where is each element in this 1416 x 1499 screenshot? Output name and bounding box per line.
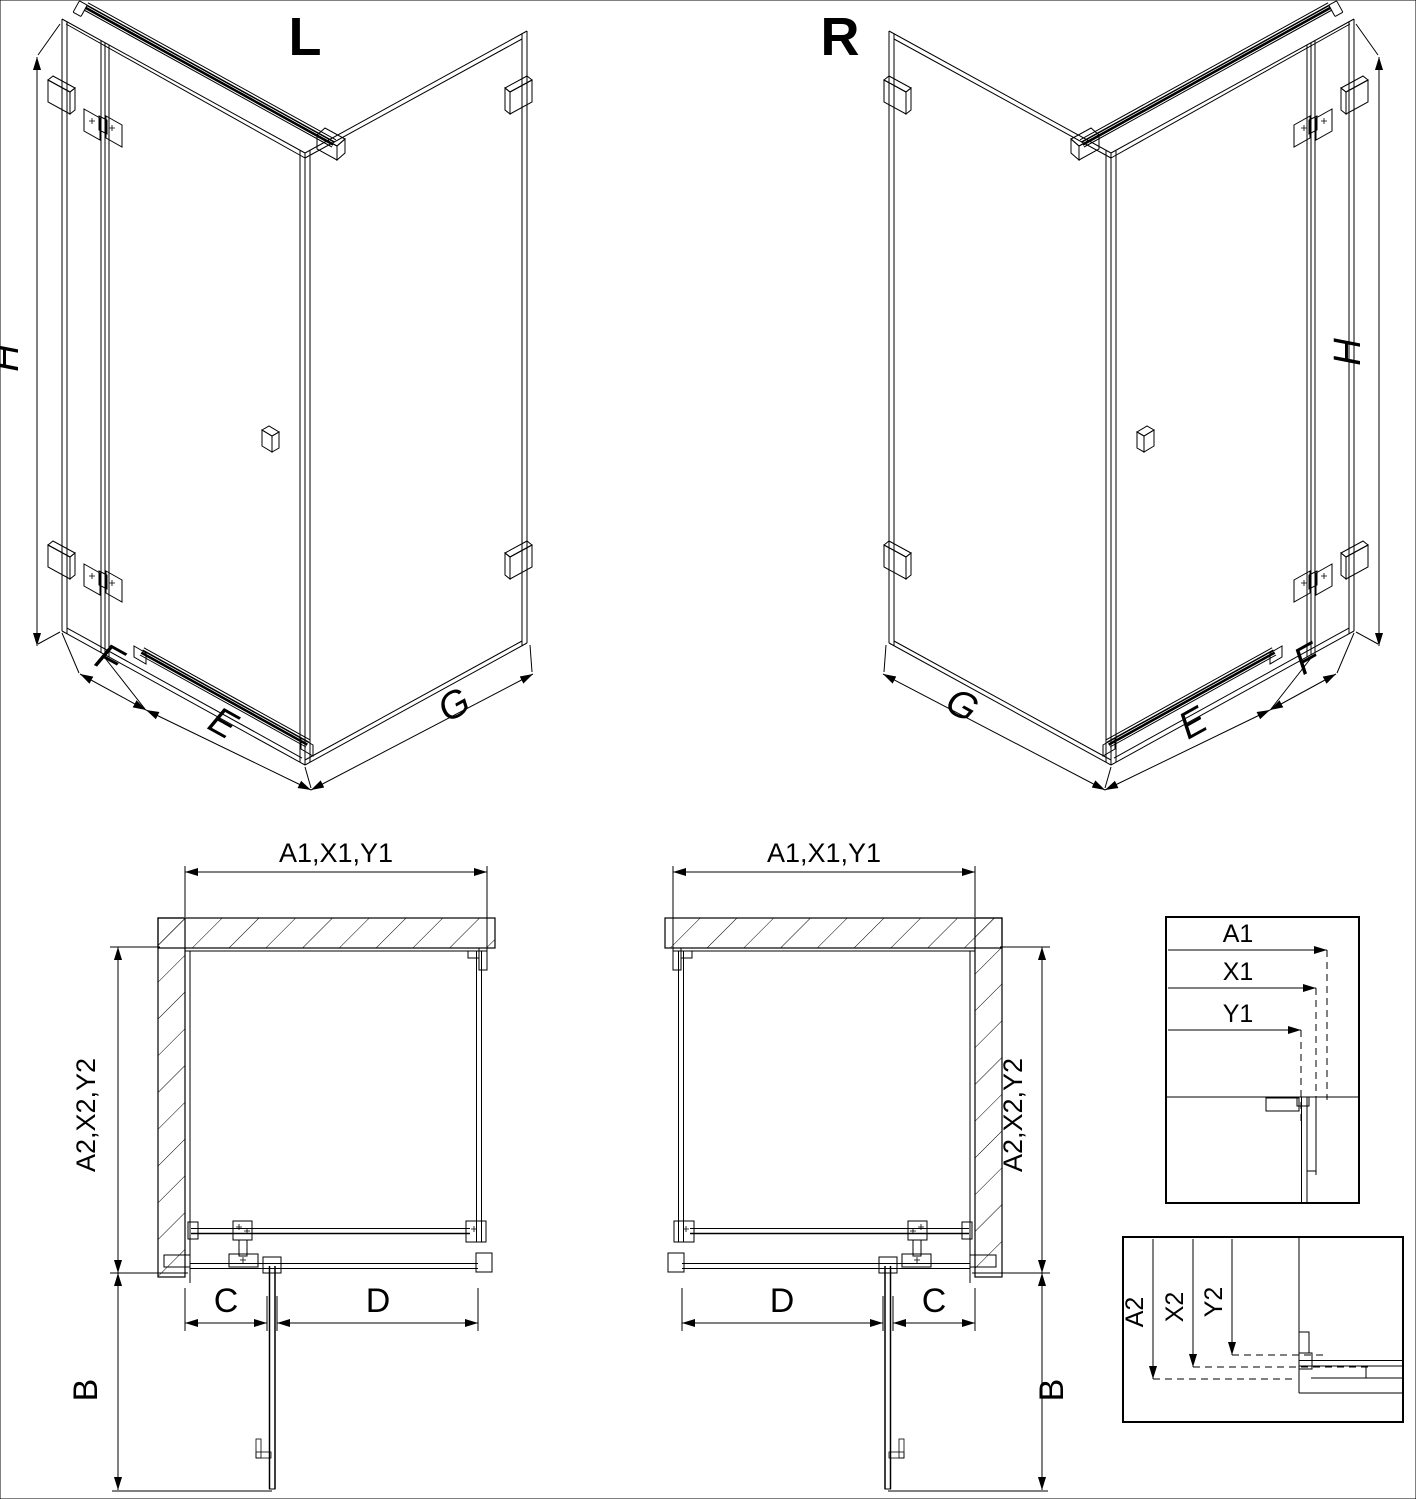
- door-hinge: [84, 564, 122, 602]
- dim-label-b-right-plan: B: [1033, 1379, 1071, 1402]
- detail-label-x2: X2: [1161, 1292, 1189, 1323]
- dim-label-h-left: H: [0, 344, 27, 372]
- dim-label-d-right-plan: D: [770, 1282, 795, 1320]
- dim-label-depth-left-plan: A2,X2,Y2: [71, 1058, 101, 1172]
- plan-support-bar: [188, 1221, 486, 1267]
- dim-label-b-left-plan: B: [67, 1379, 105, 1402]
- wall-top-right-plan: [665, 918, 1002, 948]
- technical-drawing-page: L H F E G R H G E F A1,X1,Y1 A2,X2,Y2 C …: [0, 0, 1416, 1499]
- detail-view-width: [1166, 917, 1359, 1203]
- door-handle-knob: [262, 426, 279, 452]
- detail-label-y1: Y1: [1223, 1000, 1254, 1028]
- detail-label-y2: Y2: [1200, 1287, 1228, 1318]
- wall-bracket: [505, 76, 532, 114]
- dim-label-width-left-plan: A1,X1,Y1: [279, 838, 393, 868]
- detail-label-a2: A2: [1121, 1297, 1149, 1328]
- door-hinge: [84, 109, 122, 147]
- dim-label-d-left-plan: D: [366, 1282, 391, 1320]
- dim-label-h-right: H: [1327, 338, 1369, 366]
- dim-label-c-right-plan: C: [922, 1282, 947, 1320]
- detail-label-a1: A1: [1223, 920, 1254, 948]
- dim-label-c-left-plan: C: [214, 1282, 239, 1320]
- detail-view-depth: [1123, 1237, 1403, 1422]
- canvas-background: [0, 0, 1416, 1499]
- wall-top-left-plan: [158, 918, 495, 948]
- dim-label-width-right-plan: A1,X1,Y1: [767, 838, 881, 868]
- variant-label-right: R: [821, 7, 860, 67]
- wall-bracket: [505, 541, 532, 579]
- dim-label-depth-right-plan: A2,X2,Y2: [998, 1058, 1028, 1172]
- shower-enclosure-drawing: L H F E G R H G E F A1,X1,Y1 A2,X2,Y2 C …: [0, 0, 1416, 1499]
- detail-label-x1: X1: [1223, 958, 1254, 986]
- variant-label-left: L: [289, 7, 322, 67]
- wall-side-left-plan: [158, 918, 185, 1277]
- open-door: [256, 1257, 281, 1489]
